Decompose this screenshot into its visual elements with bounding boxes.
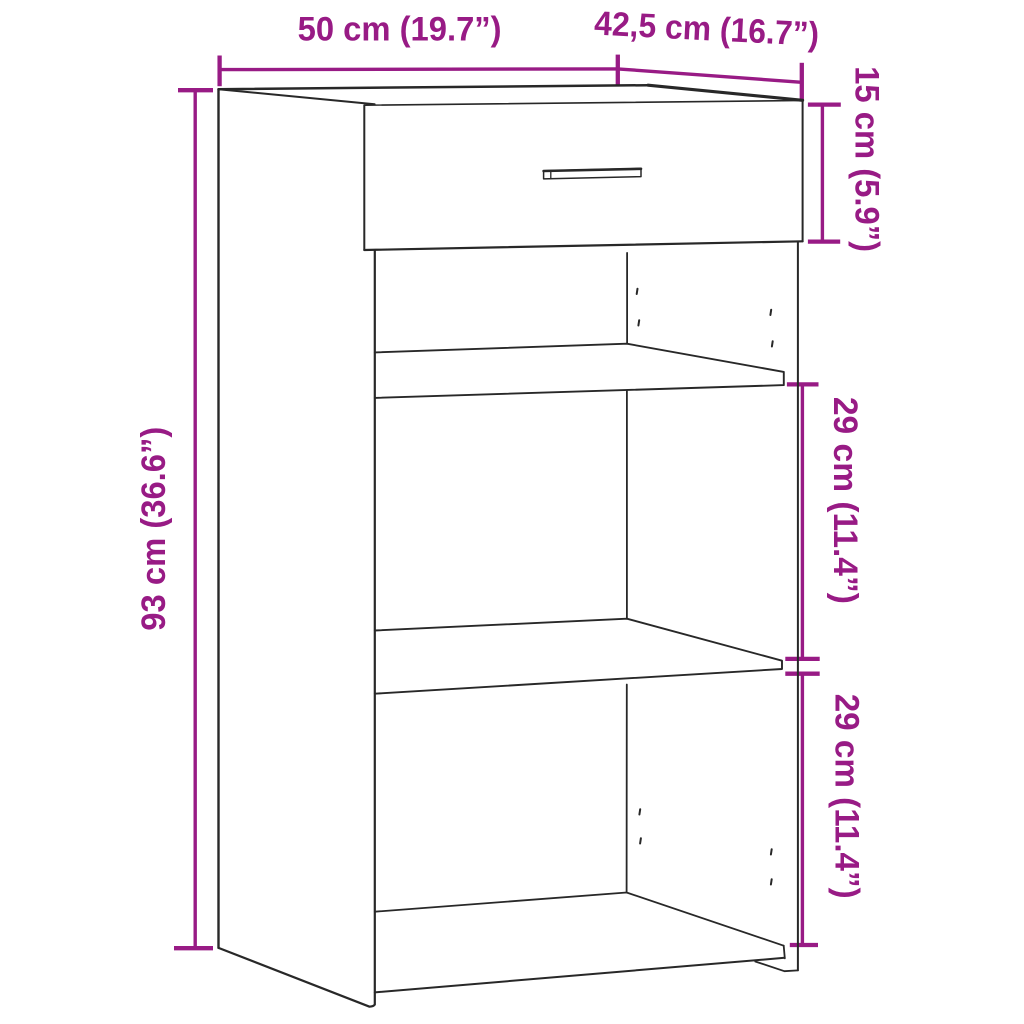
svg-text:50 cm (19.7”): 50 cm (19.7”) — [298, 10, 502, 48]
svg-text:93 cm (36.6”): 93 cm (36.6”) — [135, 427, 173, 631]
svg-text:29 cm (11.4”): 29 cm (11.4”) — [826, 397, 864, 604]
svg-text:29 cm (11.4”): 29 cm (11.4”) — [828, 694, 866, 899]
svg-text:15 cm (5.9”): 15 cm (5.9”) — [848, 66, 886, 252]
